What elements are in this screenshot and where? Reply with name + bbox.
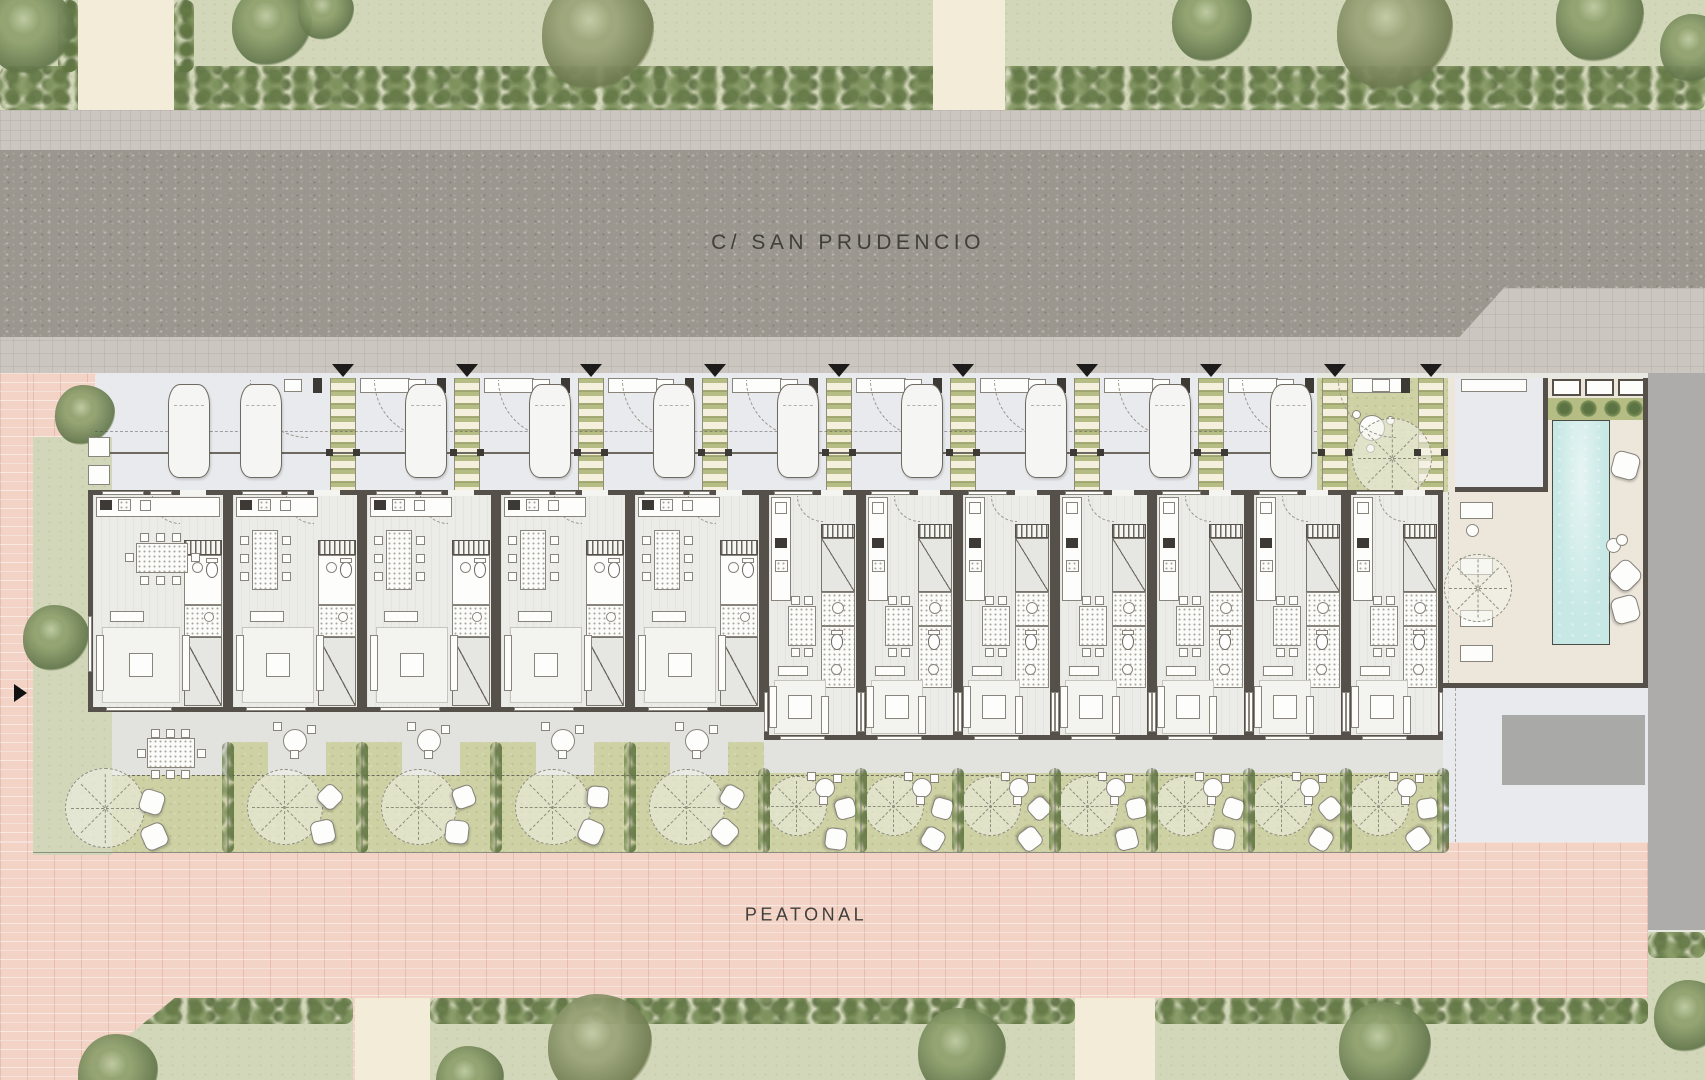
eave-mark-a8 xyxy=(1318,449,1325,456)
unit-04-sink2 xyxy=(594,562,605,573)
unit-06-toilet xyxy=(831,634,843,650)
unit-06-t-chair-2 xyxy=(791,648,800,657)
unit-11-window-n xyxy=(1259,491,1298,495)
unit-01-t-chair-2 xyxy=(172,533,181,542)
unit-10-tv xyxy=(1166,666,1196,676)
parked-car-1 xyxy=(240,384,282,478)
garden-10-chair-0 xyxy=(1195,772,1204,781)
garden-table-11 xyxy=(1300,778,1320,798)
unit-08-table xyxy=(982,606,1010,646)
unit-02-appliance xyxy=(280,500,291,511)
unit-12-window-e xyxy=(1439,692,1443,732)
parked-car-5-screen xyxy=(783,405,813,406)
unit-05-t-chair-4 xyxy=(684,554,693,563)
unit-05-door-n xyxy=(716,490,742,496)
unit-10-coffee-table xyxy=(1176,695,1200,719)
unit-05-shower xyxy=(720,605,758,637)
unit-01-appliance xyxy=(140,500,151,511)
unit-06-window-s xyxy=(780,736,825,740)
unit-04-t-chair-2 xyxy=(508,572,517,581)
garden-table-07 xyxy=(912,778,932,798)
footpath-south-0 xyxy=(355,998,430,1080)
unit-11-table xyxy=(1273,606,1301,646)
unit-04-t-chair-4 xyxy=(550,554,559,563)
tree-west-0-hi xyxy=(69,397,93,418)
unit-05-sink2 xyxy=(728,562,739,573)
unit-05-sofa-l xyxy=(638,635,646,691)
eave-mark-b1 xyxy=(477,449,484,456)
unit-10-cooktop xyxy=(1163,560,1176,572)
unit-12-t-chair-3 xyxy=(1386,648,1395,657)
site-plan-canvas: C/ SAN PRUDENCIOPEATONAL xyxy=(0,0,1705,1080)
unit-07-toilet-tank xyxy=(928,630,940,635)
parked-car-2 xyxy=(405,384,447,478)
unit-04-sofa-l xyxy=(504,635,512,691)
unit-12-t-chair-1 xyxy=(1386,596,1395,605)
unit-11-t-chair-3 xyxy=(1289,648,1298,657)
garden-hedge-11 xyxy=(1243,768,1255,853)
unit-12-toilet xyxy=(1413,634,1425,650)
stepping-path-4 xyxy=(826,378,852,492)
footpath-north-1 xyxy=(933,0,1005,110)
unit-12-sink3 xyxy=(1413,664,1424,675)
stepping-stone-w0 xyxy=(88,437,110,457)
terrace-table-01 xyxy=(147,738,195,768)
unit-04-window-n1 xyxy=(510,491,550,495)
unit-12-window-w xyxy=(1346,692,1350,732)
garden-07-chair-0 xyxy=(904,772,913,781)
unit-06-coffee-table xyxy=(788,695,812,719)
unit-01-sink3 xyxy=(204,612,214,622)
unit-08-sofa-l xyxy=(963,686,971,728)
parked-car-3-screen xyxy=(535,405,565,406)
garden-hedge-03 xyxy=(356,742,368,853)
unit-07-sink xyxy=(872,538,884,548)
unit-11-door-n xyxy=(1306,490,1328,496)
unit-05-appliance xyxy=(682,500,693,511)
eave-mark-a5 xyxy=(946,449,953,456)
unit-11-sink3 xyxy=(1316,664,1327,675)
unit-04-sink xyxy=(508,500,520,510)
unit-06-t-chair-3 xyxy=(804,648,813,657)
unit-10-grille xyxy=(1209,524,1243,538)
driveway-marker-4 xyxy=(828,364,850,377)
unit-10-t-chair-0 xyxy=(1179,596,1188,605)
terrace-02-chair-2 xyxy=(290,750,299,759)
unit-06-window-w xyxy=(764,692,768,732)
terrace-01-chair-7 xyxy=(197,749,206,758)
parked-car-8-screen xyxy=(1155,405,1185,406)
unit-02-shower xyxy=(318,605,356,637)
skylight-1 xyxy=(1585,379,1614,396)
unit-01-door-n xyxy=(180,490,206,496)
unit-05-grille xyxy=(720,540,758,555)
garden-table-09 xyxy=(1106,778,1126,798)
unit-09-sofa-l xyxy=(1060,686,1068,728)
unit-08-sink2 xyxy=(1026,602,1038,614)
terrace-01-chair-6 xyxy=(137,749,146,758)
unit-04-appliance xyxy=(548,500,559,511)
unit-03-sofa-l xyxy=(370,635,378,691)
unit-04-t-chair-3 xyxy=(550,536,559,545)
terrace-01-chair-0 xyxy=(151,729,160,738)
unit-11-t-chair-1 xyxy=(1289,596,1298,605)
unit-07-table xyxy=(885,606,913,646)
unit-03-t-chair-0 xyxy=(374,536,383,545)
unit-11-window-s xyxy=(1265,736,1310,740)
unit-08-t-chair-1 xyxy=(998,596,1007,605)
unit-02-window-n2 xyxy=(287,491,308,495)
garden-table-12 xyxy=(1397,778,1417,798)
unit-02-t-chair-1 xyxy=(240,554,249,563)
unit-01-window-n2 xyxy=(150,491,172,495)
unit-08-toilet-tank xyxy=(1025,630,1037,635)
unit-06-sink3 xyxy=(831,664,842,675)
garden-hedge-end xyxy=(1437,768,1449,853)
unit-01-coffee-table xyxy=(129,653,153,677)
unit-12-t-chair-0 xyxy=(1373,596,1382,605)
garden-06-chair-2 xyxy=(819,796,828,805)
unit-08-sofa-r xyxy=(1015,696,1023,734)
unit-04-door-n xyxy=(582,490,608,496)
unit-04-shower xyxy=(586,605,624,637)
unit-06-sink2 xyxy=(832,602,844,614)
pool-side-table2 xyxy=(1616,534,1628,546)
unit-03-t-chair-5 xyxy=(416,572,425,581)
unit-12-appliance xyxy=(1357,502,1369,514)
driveway-marker-5 xyxy=(952,364,974,377)
pool-wall-east xyxy=(1643,378,1648,688)
unit-04-sink3 xyxy=(606,612,616,622)
unit-01-sink xyxy=(100,500,112,510)
unit-02-t-chair-3 xyxy=(282,536,291,545)
unit-07-t-chair-3 xyxy=(901,648,910,657)
terrace-04-chair-1 xyxy=(575,725,584,734)
unit-04-cooktop xyxy=(526,499,539,511)
garden-table-08 xyxy=(1009,778,1029,798)
unit-05-t-chair-1 xyxy=(642,554,651,563)
eave-mark-b4 xyxy=(849,449,856,456)
eave-mark-a2 xyxy=(574,449,581,456)
eave-mark-a7 xyxy=(1194,449,1201,456)
garden-hedge-07 xyxy=(855,768,867,853)
unit-07-appliance xyxy=(872,502,884,514)
unit-06-door-n xyxy=(821,490,843,496)
unit-06-appliance xyxy=(775,502,787,514)
unit-09-grille xyxy=(1112,524,1146,538)
garden-12-chair-1 xyxy=(1415,774,1424,783)
garden-06-chair-1 xyxy=(833,774,842,783)
unit-09-t-chair-2 xyxy=(1082,648,1091,657)
unit-10-t-chair-3 xyxy=(1192,648,1201,657)
hedge-north-side-b xyxy=(174,0,194,72)
terrace-03-chair-2 xyxy=(424,750,433,759)
garden-09-chair-0 xyxy=(1098,772,1107,781)
garden-12-chair-0 xyxy=(1389,772,1398,781)
site-south-edge xyxy=(33,852,1443,853)
unit-04-t-chair-1 xyxy=(508,554,517,563)
unit-12-stairs xyxy=(1403,538,1437,592)
unit-07-window-w xyxy=(861,692,865,732)
unit-10-window-w xyxy=(1152,692,1156,732)
unit-07-t-chair-1 xyxy=(901,596,910,605)
unit-05-sofa-r xyxy=(718,635,726,691)
unit-09-sink3 xyxy=(1122,664,1133,675)
parked-car-7 xyxy=(1025,384,1067,478)
unit-01-window-s xyxy=(106,707,172,711)
unit-12-sink xyxy=(1357,538,1369,548)
unit-03-window-n1 xyxy=(376,491,416,495)
eave-mark-a4 xyxy=(822,449,829,456)
unit-01-toilet xyxy=(206,562,218,578)
unit-07-grille xyxy=(918,524,952,538)
terrace-05-chair-2 xyxy=(692,750,701,759)
terrace-04-chair-0 xyxy=(541,722,550,731)
garden-hedge-12 xyxy=(1340,768,1352,853)
garden-08-chair-0 xyxy=(1001,772,1010,781)
unit-08-t-chair-3 xyxy=(998,648,1007,657)
pool-garage xyxy=(1455,378,1548,492)
unit-12-cooktop xyxy=(1357,560,1370,572)
unit-05-sink xyxy=(642,500,654,510)
unit-07-sink3 xyxy=(928,664,939,675)
driveway-marker-2 xyxy=(580,364,602,377)
unit-06-window-n xyxy=(774,491,813,495)
unit-09-toilet xyxy=(1122,634,1134,650)
planter-plant-1 xyxy=(1580,400,1597,417)
unit-05-cooktop xyxy=(660,499,673,511)
unit-07-window-n xyxy=(871,491,910,495)
unit-02-tv xyxy=(250,611,284,622)
unit-02-window-s xyxy=(246,707,306,711)
unit-10-door-n xyxy=(1209,490,1231,496)
unit-03-window-n2 xyxy=(421,491,442,495)
unit-09-window-w xyxy=(1055,692,1059,732)
unit-10-sink2 xyxy=(1220,602,1232,614)
tree-south-5-hi xyxy=(451,1060,478,1080)
unit-11-sink2 xyxy=(1317,602,1329,614)
garden-pillow-04a xyxy=(586,785,610,809)
unit-11-grille xyxy=(1306,524,1340,538)
eave-mark-b3 xyxy=(725,449,732,456)
unit-05-toilet-tank xyxy=(742,558,754,563)
stepping-stone-w1 xyxy=(88,465,110,485)
unit-10-toilet-tank xyxy=(1219,630,1231,635)
unit-12-tv xyxy=(1360,666,1390,676)
unit-04-table xyxy=(520,530,546,590)
unit-01-sofa-r xyxy=(182,635,190,691)
unit-10-table xyxy=(1176,606,1204,646)
unit-01-t-chair-5 xyxy=(172,576,181,585)
unit-01-tv xyxy=(110,611,144,622)
footpath-north-0 xyxy=(78,0,174,110)
unit-02-sofa-r xyxy=(316,635,324,691)
eave-mark-b0 xyxy=(353,449,360,456)
unit-07-cooktop xyxy=(872,560,885,572)
unit-06-table xyxy=(788,606,816,646)
unit-10-sink3 xyxy=(1219,664,1230,675)
garden-hedge-08 xyxy=(952,768,964,853)
access-ramp xyxy=(1502,715,1645,785)
driveway-marker-1 xyxy=(456,364,478,377)
unit-12-sofa-l xyxy=(1351,686,1359,728)
eave-mark-b5 xyxy=(973,449,980,456)
unit-09-sink2 xyxy=(1123,602,1135,614)
unit-09-cooktop xyxy=(1066,560,1079,572)
unit-08-appliance xyxy=(969,502,981,514)
unit-08-tv xyxy=(972,666,1002,676)
unit-12-sofa-r xyxy=(1403,696,1411,734)
unit-12-coffee-table xyxy=(1370,695,1394,719)
eave-mark-b6 xyxy=(1097,449,1104,456)
unit-01-sofa-l xyxy=(96,635,104,691)
unit-07-tv xyxy=(875,666,905,676)
parked-car-1-screen xyxy=(246,405,276,406)
unit-02-door-n xyxy=(314,490,340,496)
unit-01-sink2 xyxy=(192,562,203,573)
eave-mark-a0 xyxy=(326,449,333,456)
driveway-marker-0 xyxy=(332,364,354,377)
unit-09-t-chair-0 xyxy=(1082,596,1091,605)
unit-04-window-s xyxy=(514,707,574,711)
unit-02-sofa-l xyxy=(236,635,244,691)
unit-06-t-chair-0 xyxy=(791,596,800,605)
unit-09-tv xyxy=(1069,666,1099,676)
unit-08-cooktop xyxy=(969,560,982,572)
unit-03-sofa-r xyxy=(450,635,458,691)
unit-02-toilet xyxy=(340,562,352,578)
unit-06-grille xyxy=(821,524,855,538)
unit-08-window-n xyxy=(968,491,1007,495)
unit-04-toilet-tank xyxy=(608,558,620,563)
unit-01-kitchen xyxy=(96,497,220,517)
garden-table-10 xyxy=(1203,778,1223,798)
unit-01-table xyxy=(136,543,188,573)
terrace-01-chair-1 xyxy=(166,729,175,738)
garden-06-chair-0 xyxy=(807,772,816,781)
unit-06-sofa-l xyxy=(769,686,777,728)
garden-pillow-03b xyxy=(444,819,470,845)
unit-02-sink3 xyxy=(338,612,348,622)
unit-05-sink3 xyxy=(740,612,750,622)
unit-09-door-n xyxy=(1112,490,1134,496)
eave-mark-b2 xyxy=(601,449,608,456)
unit-10-t-chair-1 xyxy=(1192,596,1201,605)
sun-lounger-0 xyxy=(1460,502,1493,519)
unit-10-appliance xyxy=(1163,502,1175,514)
parked-car-0-screen xyxy=(174,405,204,406)
unit-02-cooktop xyxy=(258,499,271,511)
unit-03-appliance xyxy=(414,500,425,511)
terrace-03-chair-1 xyxy=(441,725,450,734)
unit-11-toilet xyxy=(1316,634,1328,650)
eave-mark-b7 xyxy=(1221,449,1228,456)
parked-car-7-screen xyxy=(1031,405,1061,406)
unit-12-window-n xyxy=(1356,491,1395,495)
hedge-row-north xyxy=(0,66,1705,110)
unit-05-window-n1 xyxy=(644,491,684,495)
unit-01-t-chair-0 xyxy=(140,533,149,542)
unit-04-grille xyxy=(586,540,624,555)
unit-10-sink xyxy=(1163,538,1175,548)
unit-12-grille xyxy=(1403,524,1437,538)
garden-08-chair-1 xyxy=(1027,774,1036,783)
tree-north-3-hi xyxy=(567,0,612,39)
unit-02-toilet-tank xyxy=(340,558,352,563)
unit-03-sink3 xyxy=(472,612,482,622)
unit-06-sofa-r xyxy=(821,696,829,734)
terrace-02-chair-0 xyxy=(273,722,282,731)
unit-07-toilet xyxy=(928,634,940,650)
unit-12-sink2 xyxy=(1414,602,1426,614)
unit-07-window-s xyxy=(877,736,922,740)
garden-pillow-06b xyxy=(823,827,848,852)
stepping-path-2 xyxy=(578,378,604,492)
garden-hedge-04 xyxy=(490,742,502,853)
unit-08-window-w xyxy=(958,692,962,732)
garden-11-chair-1 xyxy=(1318,774,1327,783)
stepping-path-6 xyxy=(1074,378,1100,492)
unit-03-shower xyxy=(452,605,490,637)
terrace-01-chair-5 xyxy=(181,770,190,779)
street-name-label: C/ SAN PRUDENCIO xyxy=(711,231,985,255)
driveway-marker-8 xyxy=(1324,364,1346,377)
unit-11-appliance xyxy=(1260,502,1272,514)
unit-11-t-chair-0 xyxy=(1276,596,1285,605)
unit-03-window-s xyxy=(380,707,440,711)
unit-12-table xyxy=(1370,606,1398,646)
unit-05-window-n2 xyxy=(689,491,710,495)
unit-07-stairs xyxy=(918,538,952,592)
unit-06-stairs xyxy=(821,538,855,592)
eave-mark-b9 xyxy=(1441,449,1448,456)
unit-06-t-chair-1 xyxy=(804,596,813,605)
garden-11-chair-0 xyxy=(1292,772,1301,781)
unit-09-window-n xyxy=(1065,491,1104,495)
unit-04-coffee-table xyxy=(534,653,558,677)
unit-08-sink xyxy=(969,538,981,548)
unit-09-sofa-r xyxy=(1112,696,1120,734)
unit-04-toilet xyxy=(608,562,620,578)
unit-03-toilet xyxy=(474,562,486,578)
terrace-05-chair-1 xyxy=(709,725,718,734)
unit-09-stairs xyxy=(1112,538,1146,592)
unit-08-stairs xyxy=(1015,538,1049,592)
unit-01-shower xyxy=(184,605,222,637)
unit-10-toilet xyxy=(1219,634,1231,650)
planter-plant-2 xyxy=(1604,400,1621,417)
unit-03-t-chair-3 xyxy=(416,536,425,545)
garden-07-chair-1 xyxy=(930,774,939,783)
meter-stub-0 xyxy=(313,378,322,393)
terrace-04-chair-2 xyxy=(558,750,567,759)
garden-11-chair-2 xyxy=(1304,796,1313,805)
unit-10-t-chair-2 xyxy=(1179,648,1188,657)
sun-lounger-3 xyxy=(1460,645,1493,662)
stepping-path-3 xyxy=(702,378,728,492)
unit-07-sofa-l xyxy=(866,686,874,728)
unit-07-sink2 xyxy=(929,602,941,614)
unit-05-t-chair-5 xyxy=(684,572,693,581)
access-dashed-line xyxy=(1455,688,1456,842)
swimming-pool xyxy=(1552,420,1610,645)
stepping-path-7 xyxy=(1198,378,1224,492)
unit-01-t-chair-1 xyxy=(156,533,165,542)
driveway-marker-7 xyxy=(1200,364,1222,377)
unit-08-door-n xyxy=(1015,490,1037,496)
unit-07-t-chair-0 xyxy=(888,596,897,605)
unit-05-window-s xyxy=(648,707,708,711)
